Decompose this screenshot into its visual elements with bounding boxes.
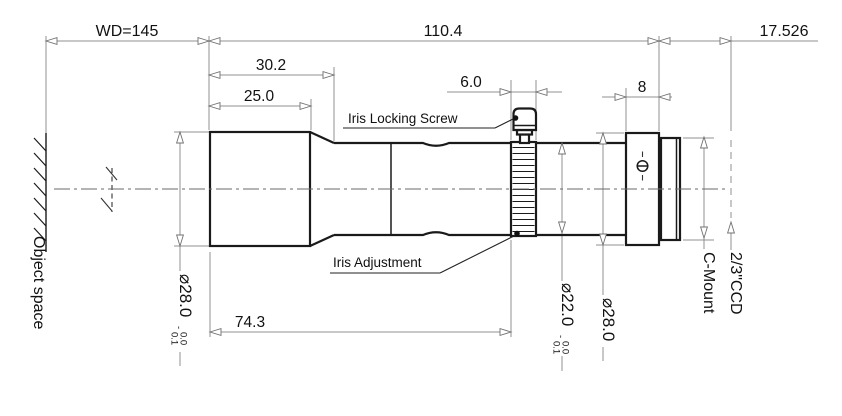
drawing-canvas: WD=145 110.4 17.526 30.2 25.0 6.0 8 74.3… — [0, 0, 842, 416]
dim-total-length: 110.4 — [424, 23, 463, 40]
dim-flange-back: 17.526 — [760, 23, 809, 40]
iris-adjustment-label: Iris Adjustment — [333, 255, 422, 270]
ccd-label: 2/3"CCD — [727, 252, 744, 315]
lens-body — [210, 109, 680, 247]
object-plane — [34, 133, 46, 252]
iris-locking-screw-dot — [513, 115, 519, 121]
front-diameter-tol-sign: - — [173, 326, 184, 329]
dim-iris-ring-width: 6.0 — [460, 74, 482, 91]
body-top-line — [334, 143, 511, 146]
front-diameter-tol-lower: 0.1 — [169, 332, 180, 345]
iris-locking-screw-shape — [514, 109, 537, 144]
taper-top — [310, 132, 334, 143]
iris-adjustment-leader — [440, 235, 516, 273]
callout-texts: Iris Locking Screw Iris Adjustment — [333, 111, 458, 270]
iris-diameter-tol-lower: 0.1 — [551, 341, 562, 354]
taper-bottom — [310, 235, 334, 246]
mount-diameter-group: ⌀28.0 — [599, 298, 618, 341]
iris-adjustment-dot — [514, 231, 520, 237]
cmount-label: C-Mount — [700, 252, 717, 314]
object-space-label: Object space — [30, 236, 47, 329]
break-tick-bottom — [101, 198, 112, 211]
front-diameter-group: ⌀28.0 - 0.0 0.1 — [169, 274, 196, 345]
cmount-label-group: C-Mount — [700, 252, 717, 314]
iris-diameter-group: ⌀22.0 - 0.0 0.1 — [551, 283, 578, 354]
dim-body-length: 74.3 — [235, 314, 265, 331]
lens-drawing: WD=145 110.4 17.526 30.2 25.0 6.0 8 74.3… — [0, 0, 842, 416]
object-space-label-group: Object space — [30, 236, 47, 329]
mount-diameter-value: ⌀28.0 — [599, 298, 618, 341]
label-leaders — [330, 115, 520, 273]
dim-front-barrel: 25.0 — [244, 88, 275, 105]
ccd-label-group: 2/3"CCD — [727, 252, 744, 315]
body-bottom-line — [334, 232, 511, 235]
dim-mount-ring-width: 8 — [638, 79, 647, 96]
object-plane-hatching — [34, 138, 46, 241]
screw-stem — [520, 135, 529, 144]
dimension-lines — [46, 41, 818, 371]
iris-diameter-value: ⌀22.0 — [558, 283, 577, 326]
dim-wd: WD=145 — [96, 23, 159, 40]
iris-locking-screw-label: Iris Locking Screw — [348, 111, 458, 126]
front-diameter-value: ⌀28.0 — [176, 274, 195, 317]
dim-front-section: 30.2 — [256, 57, 286, 74]
iris-locking-screw-leader — [495, 119, 513, 128]
iris-diameter-tol-sign: - — [555, 335, 566, 338]
